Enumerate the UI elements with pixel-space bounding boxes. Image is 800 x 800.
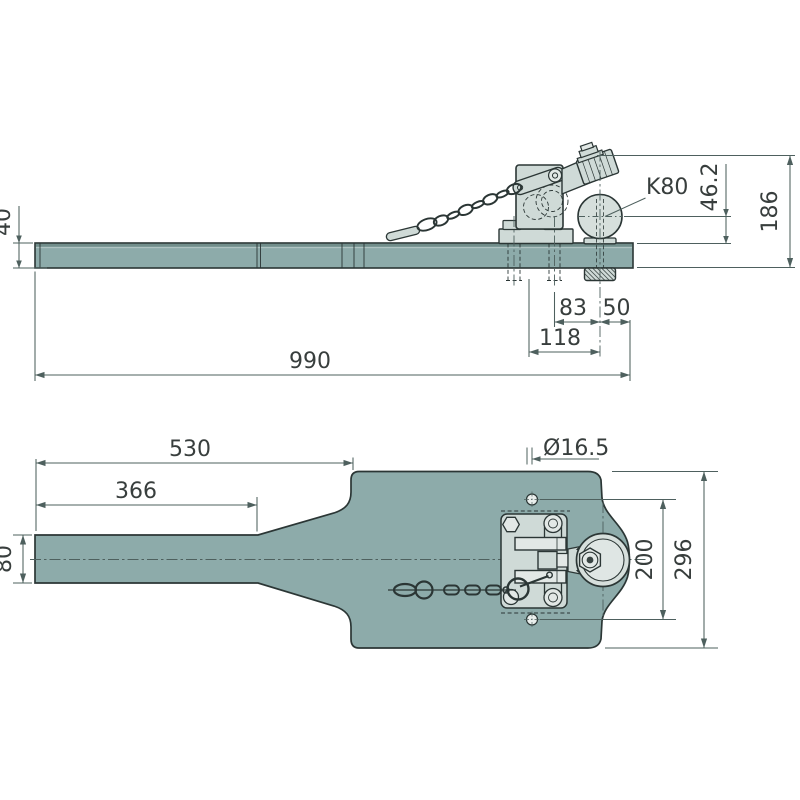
- ball-shank-neck: [557, 554, 568, 568]
- dim-46-extensions: [624, 217, 731, 244]
- dim-40-arrow-top: [16, 236, 22, 244]
- dim-plate-width-label: 296: [672, 539, 697, 581]
- hex-bolt-top-left: [503, 517, 520, 531]
- k80-coupling-label: K80: [646, 175, 688, 200]
- dim-530-extensions: [36, 458, 353, 532]
- dim-dia-arrow: [532, 456, 541, 462]
- dim-length-to-plate-label: 530: [169, 437, 211, 462]
- dim-overall-length-label: 990: [289, 349, 331, 374]
- dim-hole-to-ball-label: 118: [539, 326, 581, 351]
- dome-bolt-bottom-right: [544, 589, 562, 607]
- dim-ball-to-end-label: 50: [603, 296, 631, 321]
- coupling-base-plate: [499, 229, 573, 244]
- ball-shank: [538, 552, 557, 570]
- dim-hole-spacing-label: 200: [633, 539, 658, 581]
- dim-overall-height-label: 186: [758, 191, 783, 233]
- dim-bolt-to-ball-label: 83: [559, 296, 587, 321]
- side-view: 40 990 118 83 50 K80 46.2 186: [0, 137, 795, 381]
- dim-bar-height-label: 40: [0, 208, 16, 236]
- clamp-arm-top: [515, 538, 566, 551]
- dim-46-arrow-top: [723, 209, 729, 217]
- dim-ball-height-label: 46.2: [698, 163, 723, 212]
- top-view: 530 366 80 Ø16.5 200 296: [0, 436, 718, 648]
- side-bar-top-shade: [36, 244, 632, 247]
- dim-hole-diameter-label: Ø16.5: [543, 436, 609, 461]
- dim-46-arrow-bottom: [723, 236, 729, 244]
- dim-bar-width-label: 80: [0, 545, 17, 573]
- dim-straight-length-label: 366: [115, 479, 157, 504]
- clamp-arm-bottom: [515, 571, 566, 584]
- dim-dia-ticks: [527, 448, 532, 465]
- technical-drawing: 40 990 118 83 50 K80 46.2 186: [0, 0, 800, 800]
- dome-bolt-top-right: [544, 515, 562, 533]
- drawing-canvas: 40 990 118 83 50 K80 46.2 186: [0, 0, 800, 800]
- ball-nut-center: [587, 557, 594, 564]
- dim-40-arrow-bottom: [16, 261, 22, 269]
- side-bar: [35, 243, 633, 268]
